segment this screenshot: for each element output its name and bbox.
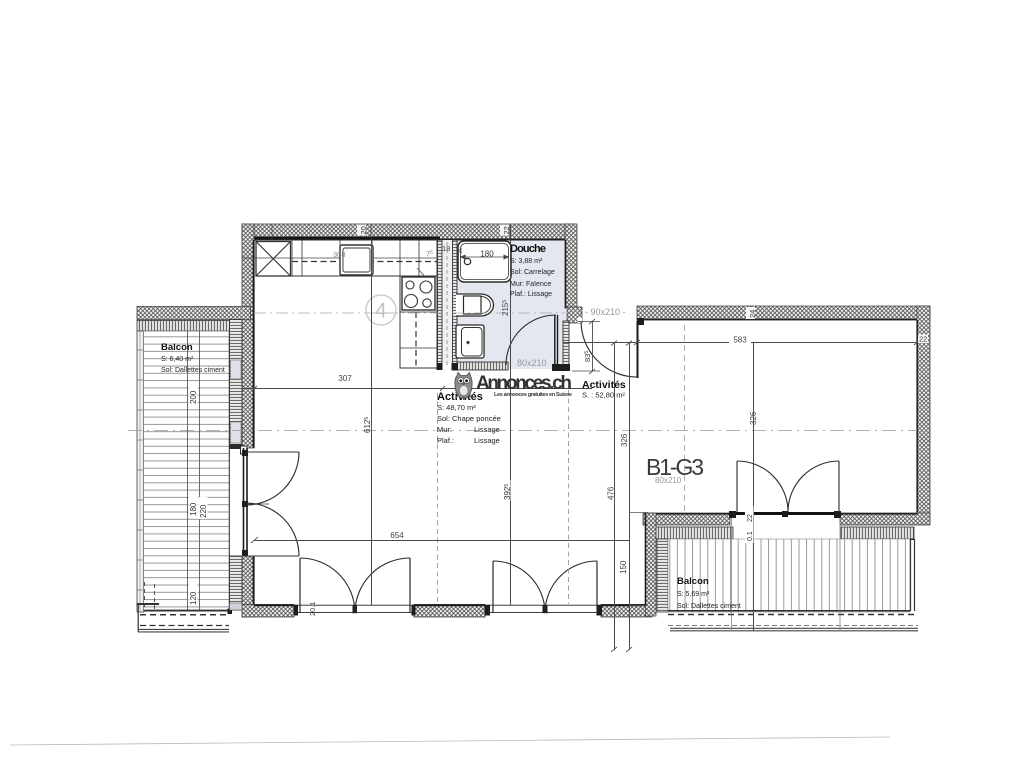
svg-text:Balcon: Balcon <box>677 576 709 587</box>
svg-text:20: 20 <box>359 226 368 234</box>
svg-text:307: 307 <box>338 374 352 383</box>
svg-text:Sol: Dallettes ciment: Sol: Dallettes ciment <box>161 367 225 374</box>
svg-text:S: 48,70 m²: S: 48,70 m² <box>437 403 476 412</box>
svg-text:22: 22 <box>747 514 754 522</box>
svg-text:Les annonces gratuites en Suis: Les annonces gratuites en Suisse <box>494 392 572 398</box>
svg-text:22: 22 <box>919 335 927 344</box>
svg-text:Sol: Dallettes ciment: Sol: Dallettes ciment <box>677 603 741 610</box>
svg-text:583: 583 <box>733 336 747 345</box>
svg-text:Annonces.ch: Annonces.ch <box>476 373 572 394</box>
svg-text:Mur: Faïence: Mur: Faïence <box>510 281 551 288</box>
svg-text:654: 654 <box>390 531 404 540</box>
svg-text:0.1: 0.1 <box>747 531 754 541</box>
svg-text:326: 326 <box>749 411 758 425</box>
svg-text:25: 25 <box>458 248 464 254</box>
svg-text:B1-G3: B1-G3 <box>646 454 704 480</box>
svg-text:150: 150 <box>619 560 628 574</box>
svg-text:Balcon: Balcon <box>161 342 193 353</box>
svg-text:476: 476 <box>607 486 616 500</box>
svg-text:Sol: Chape poncée: Sol: Chape poncée <box>437 414 501 423</box>
svg-text:Sol: Carrelage: Sol: Carrelage <box>510 269 555 276</box>
svg-text:Douche: Douche <box>510 243 546 255</box>
svg-text:80x210: 80x210 <box>517 358 547 368</box>
svg-text:S. : 52,80 m²: S. : 52,80 m² <box>582 391 625 400</box>
svg-text:180: 180 <box>480 250 494 259</box>
svg-text:Plaf.: Lissage: Plaf.: Lissage <box>510 291 552 298</box>
svg-text:- 90x210 -: - 90x210 - <box>585 307 626 317</box>
svg-text:S: 3,88 m²: S: 3,88 m² <box>510 258 543 265</box>
svg-text:20.1: 20.1 <box>308 601 317 616</box>
svg-text:Activités: Activités <box>582 379 626 391</box>
svg-text:120: 120 <box>189 591 198 605</box>
svg-text:4: 4 <box>375 300 387 323</box>
svg-text:326: 326 <box>620 433 629 447</box>
svg-text:S: 6,40 m²: S: 6,40 m² <box>161 356 194 363</box>
svg-text:308: 308 <box>333 250 346 259</box>
svg-text:S: 5,69 m²: S: 5,69 m² <box>677 591 710 598</box>
svg-text:200: 200 <box>189 390 198 404</box>
svg-text:18: 18 <box>442 244 450 253</box>
svg-text:220: 220 <box>199 504 208 518</box>
svg-text:180: 180 <box>189 502 198 516</box>
svg-text:22: 22 <box>502 226 511 234</box>
svg-text:24: 24 <box>748 310 757 318</box>
